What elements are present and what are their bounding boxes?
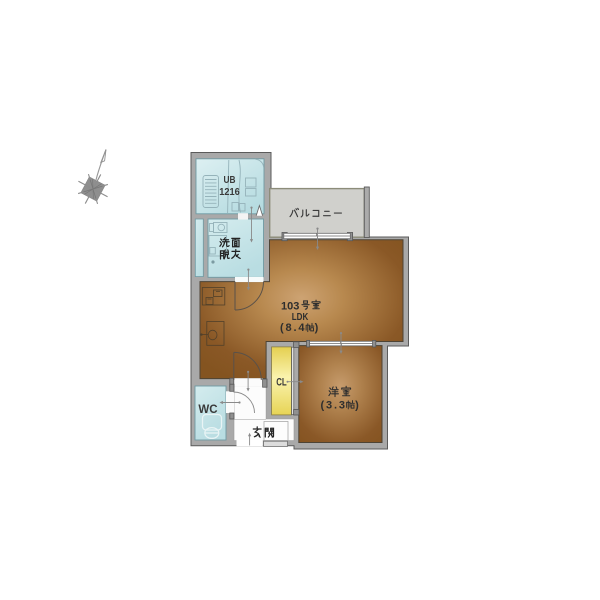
svg-text:CL: CL	[276, 377, 287, 389]
svg-text:WC: WC	[198, 404, 217, 416]
svg-text:): )	[315, 322, 319, 334]
svg-text:1216: 1216	[219, 186, 240, 198]
svg-text:): )	[355, 399, 359, 411]
svg-text:UB: UB	[224, 174, 236, 186]
